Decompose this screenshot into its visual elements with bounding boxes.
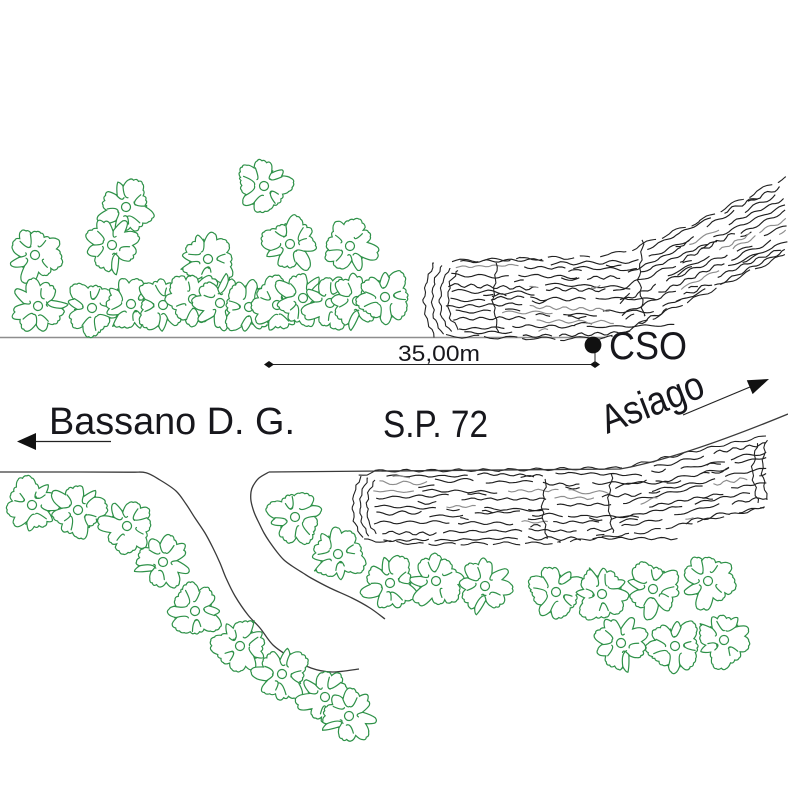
svg-text:35,00m: 35,00m (398, 341, 480, 366)
svg-text:S.P. 72: S.P. 72 (383, 404, 488, 446)
svg-text:CSO: CSO (609, 325, 687, 368)
svg-text:Bassano D. G.: Bassano D. G. (49, 401, 295, 443)
